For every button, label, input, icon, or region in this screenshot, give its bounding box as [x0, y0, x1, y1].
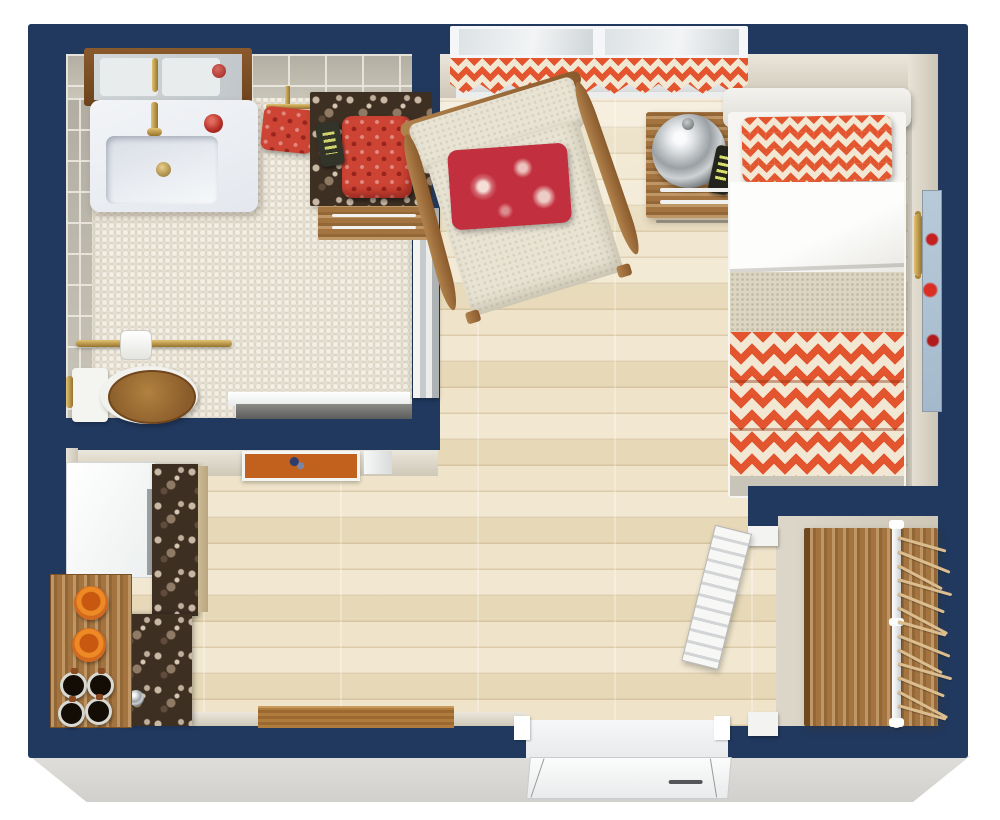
mirror-sink-reflection-left: [100, 58, 158, 96]
refrigerator[interactable]: [66, 462, 156, 578]
coverlet-fold-1: [730, 380, 904, 383]
nightstand-drawer-slot-1: [660, 188, 738, 192]
wall-hook: [66, 376, 73, 408]
bed-chevron-pillow[interactable]: [741, 115, 892, 184]
flower-artwork[interactable]: [922, 190, 942, 412]
bed[interactable]: [728, 88, 908, 498]
kitchen-counter-upper[interactable]: [152, 464, 198, 616]
entry-door-handle: [668, 780, 702, 784]
mug-handle: [96, 694, 103, 700]
entry-threshold: [526, 720, 728, 758]
toilet-paper-roll[interactable]: [120, 330, 152, 360]
wall-handle[interactable]: [914, 214, 922, 276]
bed-chevron-coverlet[interactable]: [730, 332, 904, 478]
closet-door-post-top: [748, 526, 778, 546]
foundation-slab: [20, 756, 970, 802]
orange-bowl-1[interactable]: [74, 586, 108, 620]
armchair-leg-left: [465, 309, 482, 325]
floor-plan-canvas: [0, 0, 1000, 820]
basin-drain: [156, 162, 171, 177]
mirror-sink-reflection-right: [162, 58, 220, 96]
mug-handle: [98, 668, 105, 674]
bathroom-door-shadow: [236, 404, 412, 419]
entry-frame-post-right: [714, 716, 730, 740]
entry-door-leaf[interactable]: [526, 757, 732, 799]
hanger-rack[interactable]: [898, 536, 958, 728]
coverlet-fold-2: [730, 428, 904, 431]
side-table-drawers[interactable]: [318, 206, 432, 240]
console-table[interactable]: [258, 706, 454, 728]
mirror-faucet-reflection: [152, 58, 158, 92]
window-glass-left: [459, 29, 593, 55]
side-table-drawer-slot-2: [332, 226, 416, 229]
grab-bar[interactable]: [76, 340, 232, 347]
entry-door-swing-left: [530, 758, 544, 797]
rod-bracket-top: [889, 520, 904, 529]
wooden-hanger[interactable]: [898, 536, 947, 553]
closet-divider-wall: [748, 486, 968, 516]
side-table-drawer-slot-1: [332, 214, 416, 217]
nightstand-drawer-slot-2: [660, 200, 738, 204]
vanity-faucet-spout: [147, 128, 162, 136]
entry-frame-post-left: [514, 716, 530, 740]
coffee-mug-1[interactable]: [60, 672, 87, 699]
coffee-mug-4[interactable]: [85, 698, 112, 725]
orange-bowl-2[interactable]: [72, 628, 106, 662]
towel-ring-red-towel[interactable]: [260, 105, 316, 154]
table-lamp-finial: [682, 118, 694, 130]
orange-artwork-figure: [288, 456, 306, 470]
door-jamb-white: [364, 451, 392, 474]
closet-divider-stub: [748, 486, 778, 528]
kitchen-counter-side-panel: [198, 466, 208, 612]
window-glass-right: [605, 29, 739, 55]
counter-candle[interactable]: [204, 114, 223, 133]
bed-linen-blanket: [730, 272, 904, 334]
armchair-floral-pillow[interactable]: [447, 142, 572, 230]
closet-door-post-bottom: [748, 712, 778, 736]
mug-handle: [69, 696, 76, 702]
mirror-candle-reflection: [212, 64, 226, 78]
bathroom-south-wall: [28, 418, 440, 450]
armchair-leg-right: [616, 263, 633, 279]
toilet-wood-seat: [108, 370, 196, 424]
mug-handle: [71, 668, 78, 674]
coffee-mug-3[interactable]: [58, 700, 85, 727]
entry-door-swing-right: [710, 758, 717, 797]
